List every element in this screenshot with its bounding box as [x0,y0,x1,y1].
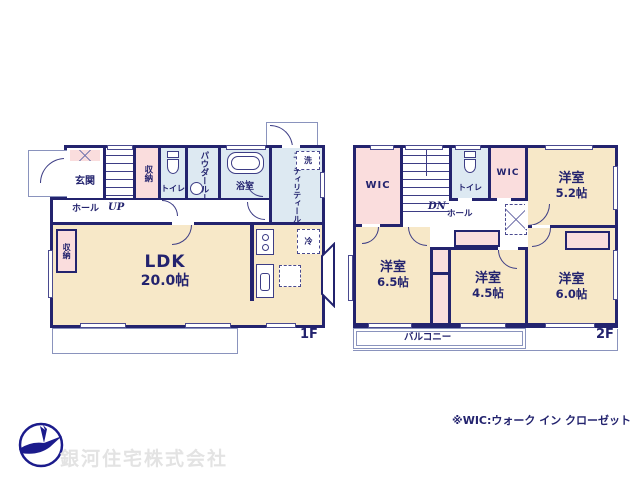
room-4-5-size: 4.5帖 [472,287,504,300]
window [226,145,266,150]
kitchen-stub-wall [250,225,254,301]
room-wic-top: WIC [491,148,525,198]
storage-1f-label: 収納 [142,165,152,182]
toilet-1f-label: トイレ [161,184,185,193]
toilet-1f-tank [167,151,179,158]
toilet-2f-label: トイレ [458,183,482,192]
kitchen-sink-basin [260,273,270,291]
window [48,250,53,298]
window [320,172,325,198]
company-name: 銀河住宅株式会社 [60,444,228,471]
closet-6-0 [565,231,610,250]
stove [256,229,274,255]
wic-left-label: WIC [365,180,390,192]
room-5-2-name: 洋室 [558,172,584,187]
balcony-label: バルコニー [404,333,451,344]
wic-top-opening [497,198,511,201]
room-6-5-name: 洋室 [380,261,406,276]
room-genkan: 玄関 [67,148,103,198]
window [266,323,296,328]
window [613,166,618,210]
hall-1f-label: ホール [72,204,99,214]
window [348,255,353,301]
room-5-2-size: 5.2帖 [556,187,588,200]
up-label: UP [108,202,124,214]
fridge-label: 冷 [305,237,313,246]
window [80,323,126,328]
room-6-0-size: 6.0帖 [556,288,588,301]
window [460,323,506,328]
balcony: バルコニー [353,328,526,349]
window [545,145,593,150]
dn-label: DN [428,201,446,213]
reference-outline-right [617,329,618,351]
wic-footnote: ※WIC:ウォーク イン クローゼット [452,412,631,428]
room-storage-1f: 収納 [136,148,158,198]
toilet-1f-bowl [167,159,179,174]
powder-sink [190,182,203,195]
closet-4-5 [454,230,500,247]
room-6-5-size: 6.5帖 [377,276,409,289]
hall-2f-label: ホール [447,210,473,220]
ldk-label-group: LDK 20.0帖 [100,248,230,294]
stairs-up [106,148,133,198]
toilet-2f-tank [464,151,476,158]
floor1-label: 1F [300,328,318,343]
ldk-size-label: 20.0帖 [141,273,190,289]
hatch-box [505,204,527,235]
window [455,145,481,150]
toilet-2f-bowl [464,159,476,173]
window [185,323,231,328]
ldk-label: LDK [144,253,185,273]
floorplan-canvas: 玄関 収納 トイレ パウダールーム 浴室 ユーティリティールーム 洗 ホール U… [0,0,640,480]
bathtub-inner [231,156,260,170]
window [405,145,443,150]
window [368,323,412,328]
terrace-outline [52,328,238,354]
shoe-closet [70,150,100,161]
closet-6-5-a [433,250,448,272]
room-4-5-name: 洋室 [475,272,501,287]
window [370,145,394,150]
kitchen-sink [256,264,274,298]
utility-porch-opening [282,145,300,148]
entrance-opening [64,156,67,184]
closet-6-5-b [433,275,448,323]
counter-dashed-box [279,265,301,287]
stove-burner [262,244,269,251]
washer-box: 洗 [296,151,320,170]
window [107,145,133,150]
ldk-storage: 収納 [56,229,77,273]
wic-top-label: WIC [497,168,520,178]
genkan-label: 玄関 [75,176,95,188]
stove-burner [262,234,269,241]
bay-window-icon [321,242,336,308]
window [613,250,618,300]
room-6-0-name: 洋室 [558,273,584,288]
floor2-label: 2F [596,328,614,343]
toilet-2f-opening [458,198,472,201]
window [545,323,595,328]
reference-outline-bottom [353,350,618,351]
fridge-box: 冷 [297,229,320,254]
room-wic-left: WIC [356,148,400,224]
washer-label: 洗 [304,156,312,165]
ldk-storage-label: 収納 [62,243,71,259]
bathtub [227,152,264,174]
